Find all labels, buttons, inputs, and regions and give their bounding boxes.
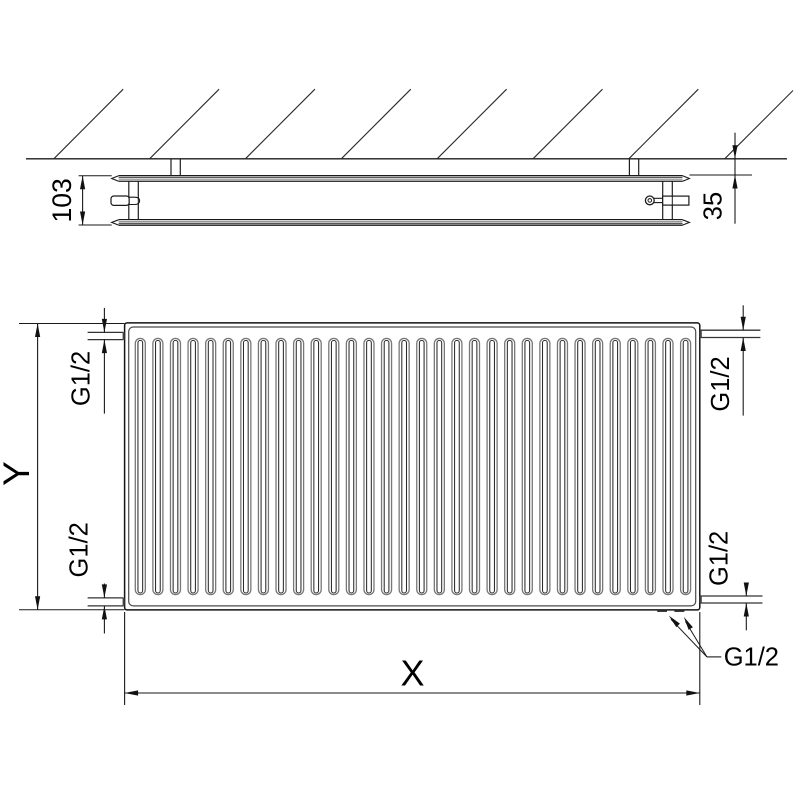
svg-text:G1/2: G1/2 [706, 531, 734, 586]
svg-text:Y: Y [0, 461, 37, 486]
svg-text:G1/2: G1/2 [707, 356, 735, 411]
svg-text:G1/2: G1/2 [66, 522, 94, 577]
svg-text:X: X [400, 653, 424, 694]
svg-text:G1/2: G1/2 [724, 644, 779, 672]
svg-text:G1/2: G1/2 [68, 351, 96, 406]
svg-text:103: 103 [47, 178, 77, 222]
svg-text:35: 35 [700, 192, 728, 220]
